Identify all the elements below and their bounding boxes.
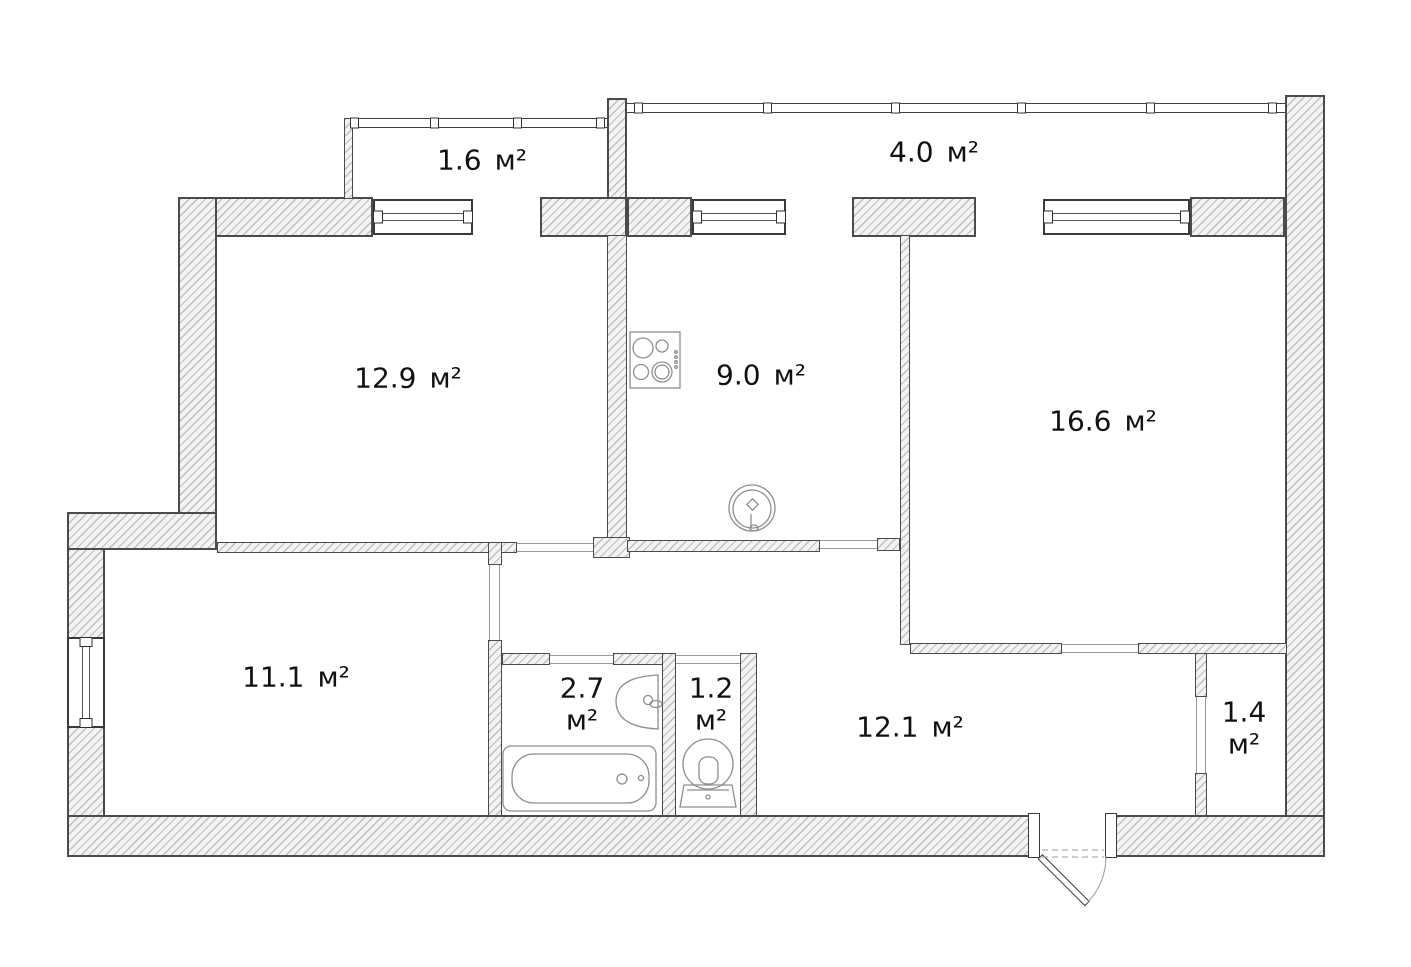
window-cap xyxy=(80,637,93,647)
area-value: 9.0 xyxy=(716,359,761,392)
window-cap xyxy=(1180,211,1190,224)
balcony-large-glazing xyxy=(627,103,1285,113)
wall-outer-left-lower-a xyxy=(67,548,105,639)
kitchen-sink-icon xyxy=(729,485,775,531)
window-pane xyxy=(377,213,469,221)
stove-icon xyxy=(630,332,680,388)
area-unit: м² xyxy=(429,362,461,395)
floor-plan: 1.6 м² 4.0 м² 12.9 м² 9.0 м² 16.6 м² 11.… xyxy=(0,0,1411,967)
toilet-icon xyxy=(680,739,736,807)
label-balcony-large: 4.0 м² xyxy=(889,136,979,169)
glazing-mullion xyxy=(763,103,772,114)
door-opening-kitchen xyxy=(820,540,877,549)
area-value: 4.0 xyxy=(889,136,934,169)
glazing-mullion xyxy=(634,103,643,114)
wall-outer-right xyxy=(1285,95,1325,857)
glazing-mullion xyxy=(596,118,605,129)
area-unit: м² xyxy=(1228,729,1260,760)
label-hallway: 12.1 м² xyxy=(856,711,964,744)
label-pantry: 1.4 м² xyxy=(1222,697,1267,760)
area-value: 16.6 xyxy=(1049,405,1111,438)
area-value: 11.1 xyxy=(242,661,304,694)
wall-bath-wc-divider xyxy=(662,653,676,816)
area-value: 12.9 xyxy=(354,362,416,395)
wall-bedroom-bottom-right xyxy=(1138,643,1287,654)
area-unit: м² xyxy=(695,705,727,736)
wall-top-under-balcony xyxy=(540,197,627,237)
wall-kitchen-door-stub xyxy=(877,538,900,551)
area-value: 1.2 xyxy=(689,673,734,704)
window-kitchen xyxy=(692,199,786,235)
label-wc: 1.2 м² xyxy=(689,673,734,736)
door-opening-bathroom xyxy=(550,655,613,664)
balcony-small-glazing xyxy=(350,118,607,128)
area-value: 1.6 xyxy=(437,144,482,177)
label-kitchen: 9.0 м² xyxy=(716,359,806,392)
wall-wc-right xyxy=(740,653,757,816)
glazing-mullion xyxy=(1146,103,1155,114)
window-second-room xyxy=(67,637,105,728)
label-bedroom: 16.6 м² xyxy=(1049,405,1157,438)
area-unit: м² xyxy=(317,661,349,694)
wall-top-right-segment xyxy=(1190,197,1285,237)
bathtub-icon xyxy=(503,746,656,811)
door-opening-wc xyxy=(676,655,740,664)
glazing-mullion xyxy=(350,118,359,129)
area-unit: м² xyxy=(931,711,963,744)
window-cap xyxy=(80,718,93,728)
washbasin-icon xyxy=(616,675,662,729)
wall-bedroom-bottom-left xyxy=(910,643,1062,654)
wall-bathroom-top-left xyxy=(502,653,550,665)
window-cap xyxy=(463,211,473,224)
glazing-mullion xyxy=(1268,103,1277,114)
label-second-room: 11.1 м² xyxy=(242,661,350,694)
label-balcony-small: 1.6 м² xyxy=(437,144,527,177)
window-bedroom xyxy=(1043,199,1190,235)
wall-living-kitchen-divider xyxy=(607,235,627,538)
wall-outer-bottom-right xyxy=(1107,815,1325,857)
area-unit: м² xyxy=(1124,405,1156,438)
window-pane xyxy=(1047,213,1186,221)
entrance-door-jamb-right xyxy=(1105,813,1117,858)
glazing-mullion xyxy=(891,103,900,114)
door-opening-pantry xyxy=(1196,697,1206,773)
wall-balcony-small-left xyxy=(344,118,353,199)
wall-divider-foot xyxy=(593,537,630,558)
area-unit: м² xyxy=(774,359,806,392)
area-unit: м² xyxy=(947,136,979,169)
entrance-door-jamb-left xyxy=(1028,813,1040,858)
area-value: 2.7 xyxy=(560,673,605,704)
glazing-mullion xyxy=(430,118,439,129)
area-unit: м² xyxy=(566,705,598,736)
wall-outer-bottom-left xyxy=(67,815,1038,857)
glazing-mullion xyxy=(1017,103,1026,114)
door-opening-bedroom xyxy=(1062,644,1138,653)
window-cap xyxy=(692,211,702,224)
window-cap xyxy=(1043,211,1053,224)
wall-living-bottom xyxy=(217,542,517,553)
glazing-mullion xyxy=(513,118,522,129)
label-bathroom: 2.7 м² xyxy=(560,673,605,736)
wall-pantry-left-lower xyxy=(1195,773,1207,816)
wall-second-room-right xyxy=(488,640,502,816)
wall-outer-left-upper xyxy=(178,197,217,542)
wall-second-room-stub xyxy=(488,542,502,565)
area-value: 1.4 xyxy=(1222,697,1267,728)
wall-top-kitchen-left xyxy=(627,197,692,237)
door-opening-second-room xyxy=(489,565,500,640)
wall-kitchen-bottom xyxy=(627,540,820,552)
wall-left-step xyxy=(67,512,217,550)
wall-kitchen-bedroom-divider xyxy=(900,235,910,645)
window-pane xyxy=(82,641,90,724)
window-pane xyxy=(696,213,782,221)
window-living-room xyxy=(373,199,473,235)
door-opening-living-room xyxy=(517,543,593,552)
wall-top-pier xyxy=(852,197,976,237)
wall-balcony-divider xyxy=(607,98,627,199)
area-unit: м² xyxy=(495,144,527,177)
label-living-room: 12.9 м² xyxy=(354,362,462,395)
entrance-door-leaf xyxy=(1038,854,1090,906)
window-cap xyxy=(373,211,383,224)
window-cap xyxy=(776,211,786,224)
area-value: 12.1 xyxy=(856,711,918,744)
wall-pantry-left-upper xyxy=(1195,653,1207,697)
wall-outer-left-lower-b xyxy=(67,726,105,817)
